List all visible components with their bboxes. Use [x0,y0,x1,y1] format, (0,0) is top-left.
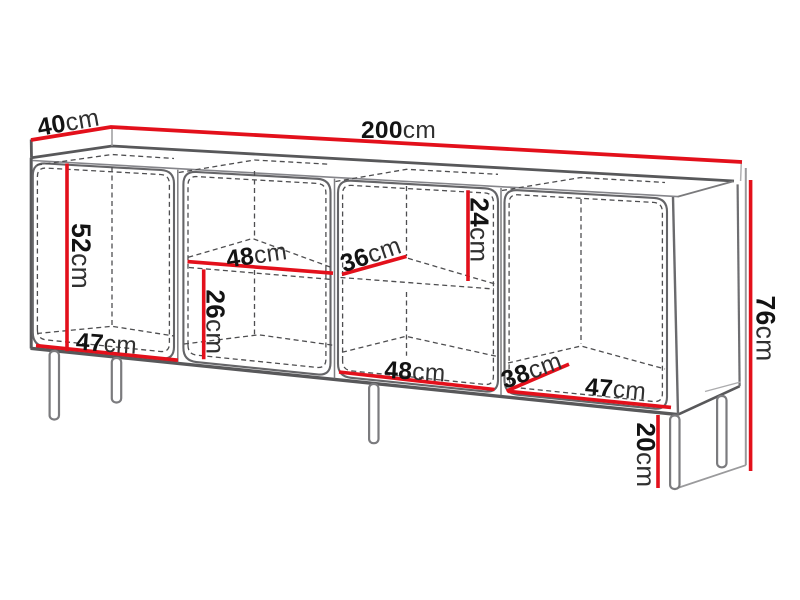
svg-text:47cm: 47cm [75,329,138,360]
svg-text:26cm: 26cm [201,290,231,355]
svg-text:52cm: 52cm [66,223,96,289]
svg-text:48cm: 48cm [384,357,447,388]
svg-text:76cm: 76cm [751,296,781,362]
svg-text:24cm: 24cm [465,198,495,263]
svg-text:200cm: 200cm [361,117,436,144]
svg-text:47cm: 47cm [584,374,647,406]
svg-text:20cm: 20cm [631,423,661,488]
